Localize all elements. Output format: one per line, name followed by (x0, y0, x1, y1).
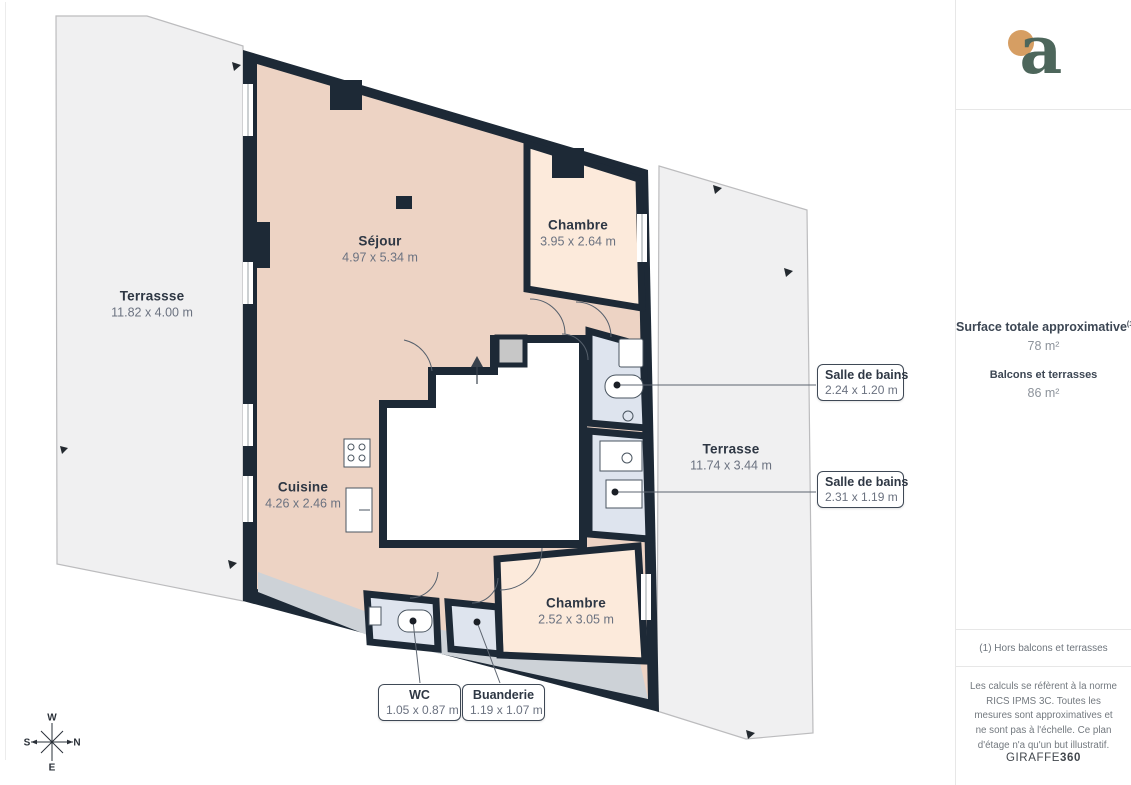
surface-total-footnote-marker: (1) (1127, 321, 1131, 328)
room-name: Chambre (540, 218, 616, 233)
callout-dims: 1.19 x 1.07 m (470, 703, 537, 717)
balconies-value: 86 m² (956, 386, 1131, 400)
compass-south: S (24, 738, 31, 749)
compass-north: N (73, 738, 80, 749)
brand-logo: a (956, 0, 1131, 110)
room-dims: 11.74 x 3.44 m (690, 459, 772, 473)
room-label-sejour: Séjour 4.97 x 5.34 m (342, 234, 418, 265)
surface-total-value: 78 m² (956, 339, 1131, 353)
room-name: Chambre (538, 596, 614, 611)
room-label-chambre-1: Chambre 3.95 x 2.64 m (540, 218, 616, 249)
room-name: Terrasse (690, 442, 772, 457)
floor-plan-drawing (0, 0, 955, 785)
brand-number: 360 (1060, 752, 1081, 764)
floorplan-page: Terrassse 11.82 x 4.00 m Séjour 4.97 x 5… (0, 0, 1131, 785)
compass-east: E (49, 763, 56, 774)
callout-name: Salle de bains (825, 475, 896, 489)
sidebar: a Surface totale approximative(1) 78 m² … (955, 0, 1131, 785)
room-label-cuisine: Cuisine 4.26 x 2.46 m (265, 480, 341, 511)
brand-name: GIRAFFE (1006, 752, 1060, 764)
room-label-chambre-2: Chambre 2.52 x 3.05 m (538, 596, 614, 627)
room-dims: 4.26 x 2.46 m (265, 497, 341, 511)
room-label-terrasse-ouest: Terrassse 11.82 x 4.00 m (111, 289, 193, 320)
callout-dims: 1.05 x 0.87 m (386, 703, 453, 717)
disclaimer-text: Les calculs se réfèrent à la norme RICS … (956, 680, 1131, 753)
logo-letter: a (1020, 8, 1063, 94)
room-name: Cuisine (265, 480, 341, 495)
room-dims: 2.52 x 3.05 m (538, 613, 614, 627)
callout-name: Buanderie (470, 688, 537, 702)
callout-salle-de-bains-2: Salle de bains 2.31 x 1.19 m (817, 471, 904, 508)
surface-total-title-text: Surface totale approximative (956, 320, 1127, 334)
logo: a (1008, 22, 1080, 92)
floor-plan: Terrassse 11.82 x 4.00 m Séjour 4.97 x 5… (0, 0, 955, 785)
callout-name: Salle de bains (825, 368, 896, 382)
callout-buanderie: Buanderie 1.19 x 1.07 m (462, 684, 545, 721)
room-dims: 3.95 x 2.64 m (540, 235, 616, 249)
brand-giraffe360: GIRAFFE360 (956, 752, 1131, 764)
callout-dims: 2.24 x 1.20 m (825, 383, 896, 397)
shaft (497, 337, 525, 365)
balconies-title: Balcons et terrasses (956, 369, 1131, 381)
room-name: Séjour (342, 234, 418, 249)
surface-stats: Surface totale approximative(1) 78 m² Ba… (956, 320, 1131, 400)
compass-west: W (47, 713, 56, 724)
callout-name: WC (386, 688, 453, 702)
surface-total-title: Surface totale approximative(1) (956, 320, 1131, 334)
room-dims: 4.97 x 5.34 m (342, 251, 418, 265)
room-label-terrasse-est: Terrasse 11.74 x 3.44 m (690, 442, 772, 473)
room-name: Terrassse (111, 289, 193, 304)
room-dims: 11.82 x 4.00 m (111, 306, 193, 320)
footnote-text: (1) Hors balcons et terrasses (979, 643, 1107, 654)
callout-dims: 2.31 x 1.19 m (825, 490, 896, 504)
callout-salle-de-bains-1: Salle de bains 2.24 x 1.20 m (817, 364, 904, 401)
footnote-block: (1) Hors balcons et terrasses (956, 629, 1131, 667)
callout-wc: WC 1.05 x 0.87 m (378, 684, 461, 721)
